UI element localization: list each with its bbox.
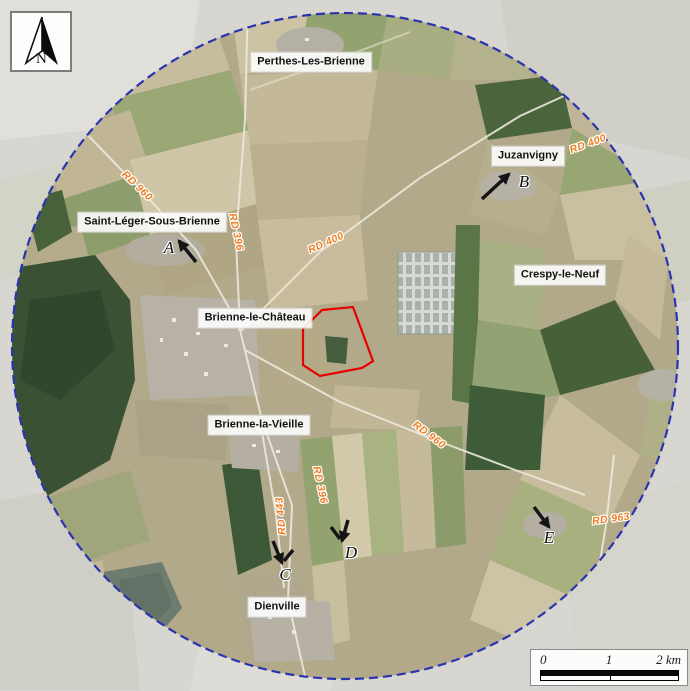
scale-tick-2: 2 km [656, 652, 681, 668]
scale-bar-graphic [540, 670, 679, 681]
scale-tick-0: 0 [540, 652, 547, 668]
north-letter: N [36, 51, 47, 68]
scale-bar: 0 1 2 km [530, 649, 688, 686]
scale-tick-1: 1 [606, 652, 613, 668]
north-arrow: N [10, 11, 72, 72]
satellite-imagery [0, 0, 690, 691]
map-canvas: Perthes-Les-BrienneJuzanvignySaint-Léger… [0, 0, 690, 691]
